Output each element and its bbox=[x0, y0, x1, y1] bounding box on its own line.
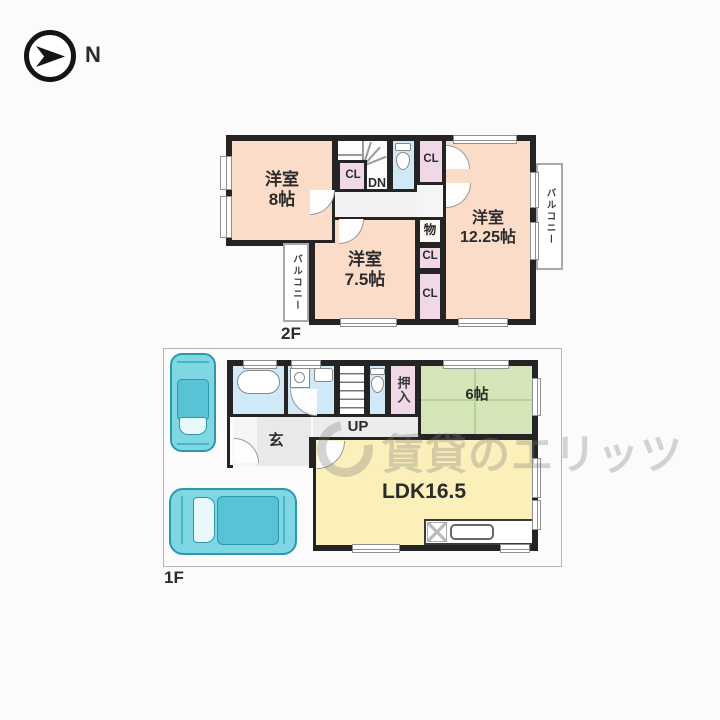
room-size: 7.5帖 bbox=[319, 270, 411, 290]
car-roof bbox=[217, 496, 279, 545]
room-label-bedroom75: 洋室 7.5帖 bbox=[319, 250, 411, 290]
sink-icon bbox=[314, 368, 333, 382]
closet-label: CL bbox=[418, 250, 442, 264]
room-label-bedroom1225: 洋室 12.25帖 bbox=[443, 210, 533, 248]
tatami-label: 6帖 bbox=[447, 386, 507, 404]
toilet-tank-icon bbox=[395, 143, 411, 151]
floor1-plan: 押入 6帖 玄 UP LDK16.5 bbox=[0, 340, 720, 600]
hallway-2f bbox=[417, 185, 443, 217]
car-icon bbox=[170, 353, 216, 452]
car-roof bbox=[177, 379, 209, 421]
oshiire-closet: 押入 bbox=[388, 363, 418, 417]
window bbox=[530, 172, 539, 208]
tatami-line bbox=[474, 401, 476, 434]
car-line bbox=[181, 496, 183, 544]
window-bumpout bbox=[220, 196, 232, 238]
room-name: 洋室 bbox=[319, 250, 411, 270]
window bbox=[530, 222, 539, 260]
car-line bbox=[283, 496, 285, 544]
room-name: 洋室 bbox=[236, 170, 328, 190]
window bbox=[352, 544, 400, 553]
car-line bbox=[177, 361, 209, 363]
window bbox=[532, 458, 541, 498]
oshiire-label: 押入 bbox=[394, 376, 413, 404]
storage-label: 物 bbox=[418, 223, 442, 238]
floorplan-canvas: N CL DN CL 物 bbox=[0, 0, 720, 720]
car-windshield bbox=[193, 497, 215, 543]
balcony-right: バルコニー bbox=[536, 163, 563, 270]
car-line bbox=[177, 443, 209, 445]
washing-machine-icon bbox=[290, 368, 310, 388]
bathtub-icon bbox=[237, 370, 280, 394]
closet-label: CL bbox=[418, 153, 444, 167]
window bbox=[532, 378, 541, 416]
balcony-label: バルコニー bbox=[543, 188, 557, 246]
floor1-label: 1F bbox=[164, 568, 184, 588]
floor2-plan: CL DN CL 物 CL CL バルコニー バルコニー 洋室 8帖 洋室 1 bbox=[0, 0, 720, 350]
window bbox=[532, 500, 541, 530]
stairs-1f bbox=[337, 363, 367, 417]
window bbox=[291, 360, 321, 369]
room-name: 洋室 bbox=[443, 210, 533, 229]
genkan-label: 玄 bbox=[266, 432, 286, 450]
ldk-label: LDK16.5 bbox=[313, 480, 535, 505]
washer-drum bbox=[294, 372, 305, 383]
stair-line bbox=[338, 154, 362, 156]
balcony-left: バルコニー bbox=[283, 243, 309, 322]
car-icon bbox=[169, 488, 297, 555]
balcony-label: バルコニー bbox=[289, 254, 303, 312]
room-size: 12.25帖 bbox=[443, 229, 533, 248]
kitchen-sink-icon bbox=[450, 524, 494, 540]
stairs-down-label: DN bbox=[363, 176, 391, 191]
kitchen-stove-icon bbox=[427, 522, 447, 542]
closet-label: CL bbox=[418, 288, 442, 302]
window bbox=[443, 360, 509, 369]
window bbox=[340, 318, 397, 327]
window bbox=[458, 318, 508, 327]
window bbox=[500, 544, 530, 553]
car-windshield bbox=[179, 417, 207, 435]
toilet-tank-icon bbox=[370, 368, 385, 375]
stairs-up-label: UP bbox=[341, 418, 375, 436]
window bbox=[453, 135, 517, 144]
window-bumpout bbox=[220, 156, 232, 190]
window bbox=[243, 360, 277, 369]
